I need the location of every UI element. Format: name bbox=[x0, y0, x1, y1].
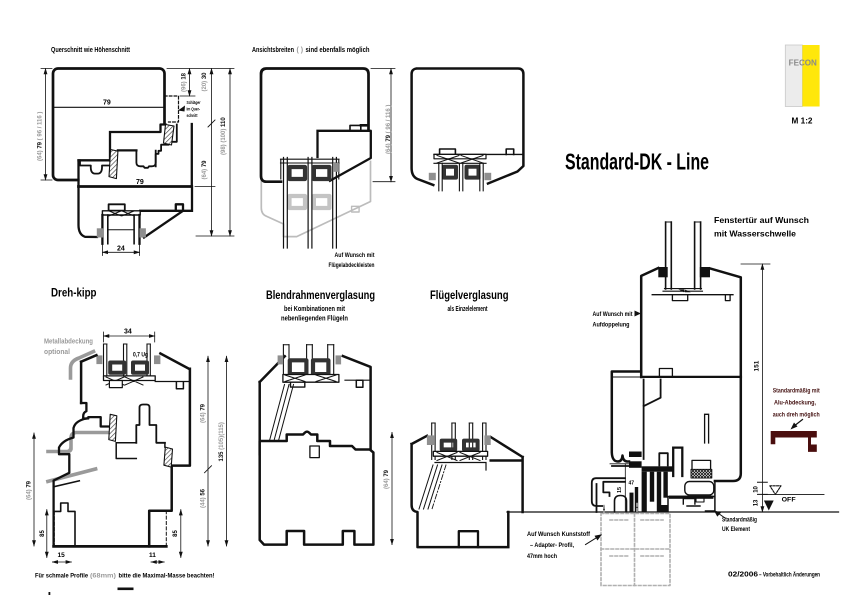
svg-text:Flügelverglasung: Flügelverglasung bbox=[430, 288, 509, 302]
svg-text:13: 13 bbox=[754, 499, 760, 506]
svg-text:(64) 79 ( 96 / 116 ): (64) 79 ( 96 / 116 ) bbox=[38, 112, 44, 161]
svg-text:UK Element: UK Element bbox=[722, 526, 750, 533]
svg-text:M 1:2: M 1:2 bbox=[792, 117, 814, 126]
svg-text:15: 15 bbox=[617, 487, 623, 493]
svg-text:im Quer-: im Quer- bbox=[187, 107, 201, 113]
svg-text:0,7 Ug: 0,7 Ug bbox=[133, 352, 148, 359]
svg-text:(64) 79: (64) 79 bbox=[202, 160, 208, 180]
svg-text:Alu-Abdeckung,: Alu-Abdeckung, bbox=[774, 400, 816, 407]
svg-text:Dreh-kipp: Dreh-kipp bbox=[51, 286, 97, 300]
svg-text:Fenstertür auf Wunsch: Fenstertür auf Wunsch bbox=[714, 215, 809, 225]
svg-text:nebenliegenden Flügeln: nebenliegenden Flügeln bbox=[281, 316, 348, 323]
svg-text:11: 11 bbox=[149, 552, 156, 559]
svg-text:mit Wasserschwelle: mit Wasserschwelle bbox=[714, 229, 796, 239]
svg-text:135 (105)(115): 135 (105)(115) bbox=[219, 422, 225, 461]
svg-text:(96) 18: (96) 18 bbox=[182, 72, 188, 92]
svg-text:(98) (100) 110: (98) (100) 110 bbox=[221, 117, 227, 155]
svg-text:Ansichtsbreiten: Ansichtsbreiten bbox=[252, 47, 294, 54]
svg-text:(64) 79 ( 96 / 116 ): (64) 79 ( 96 / 116 ) bbox=[386, 105, 392, 154]
svg-text:( ): ( ) bbox=[297, 47, 304, 54]
svg-text:34: 34 bbox=[124, 329, 132, 336]
svg-text:10: 10 bbox=[754, 485, 760, 492]
svg-text:79: 79 bbox=[136, 179, 144, 186]
svg-text:47: 47 bbox=[629, 481, 635, 487]
svg-text:Querschnitt wie Höhenschnitt: Querschnitt wie Höhenschnitt bbox=[51, 47, 131, 54]
svg-text:– Adapter- Profil,: – Adapter- Profil, bbox=[530, 542, 574, 549]
svg-text:(20) 30: (20) 30 bbox=[202, 72, 208, 92]
svg-text:Standardmäßig mit: Standardmäßig mit bbox=[773, 388, 820, 395]
svg-text:(68mm): (68mm) bbox=[90, 573, 116, 580]
svg-text:Standard-DK - Line: Standard-DK - Line bbox=[565, 149, 709, 175]
svg-text:Flügelabdeckleisten: Flügelabdeckleisten bbox=[329, 262, 375, 269]
svg-text:Blendrahmenverglasung: Blendrahmenverglasung bbox=[266, 288, 375, 302]
svg-text:bitte die Maximal-Masse beacht: bitte die Maximal-Masse beachten! bbox=[119, 573, 215, 580]
svg-text:Auf Wunsch mit: Auf Wunsch mit bbox=[593, 311, 634, 318]
svg-text:Metallabdeckung: Metallabdeckung bbox=[44, 339, 93, 346]
svg-text:OFF: OFF bbox=[782, 497, 796, 503]
svg-text:79: 79 bbox=[103, 100, 111, 107]
svg-text:schnitt: schnitt bbox=[187, 113, 198, 119]
svg-text:– Vorbehaltlich Änderungen: – Vorbehaltlich Änderungen bbox=[759, 572, 820, 579]
svg-text:47mm hoch: 47mm hoch bbox=[527, 553, 557, 560]
svg-text:85: 85 bbox=[40, 530, 46, 537]
svg-text:(44) 56: (44) 56 bbox=[201, 488, 207, 508]
svg-text:24: 24 bbox=[117, 246, 125, 253]
svg-text:15: 15 bbox=[58, 552, 66, 559]
svg-text:Für schmale Profile: Für schmale Profile bbox=[35, 573, 88, 580]
svg-text:(64) 79: (64) 79 bbox=[27, 480, 33, 500]
svg-text:optional: optional bbox=[44, 349, 70, 356]
svg-text:Standardmäßig: Standardmäßig bbox=[722, 517, 757, 524]
svg-text:(64) 79: (64) 79 bbox=[384, 469, 390, 489]
svg-text:(64) 79: (64) 79 bbox=[201, 403, 207, 423]
svg-text:Auf Wunsch Kunststoff: Auf Wunsch Kunststoff bbox=[527, 531, 591, 538]
svg-text:02/2006: 02/2006 bbox=[728, 570, 758, 579]
svg-text:bei Kombinationen mit: bei Kombinationen mit bbox=[284, 306, 346, 313]
svg-text:als Einzelelement: als Einzelelement bbox=[448, 306, 488, 313]
svg-text:Aufdoppelung: Aufdoppelung bbox=[593, 322, 630, 329]
svg-text:Schläger: Schläger bbox=[187, 100, 201, 106]
svg-text:FECON: FECON bbox=[789, 59, 818, 68]
svg-text:auch dreh möglich: auch dreh möglich bbox=[773, 412, 820, 419]
svg-text:sind ebenfalls möglich: sind ebenfalls möglich bbox=[306, 47, 370, 54]
svg-text:151: 151 bbox=[754, 360, 761, 371]
svg-text:85: 85 bbox=[173, 530, 179, 537]
svg-text:Auf Wunsch mit: Auf Wunsch mit bbox=[335, 252, 376, 259]
